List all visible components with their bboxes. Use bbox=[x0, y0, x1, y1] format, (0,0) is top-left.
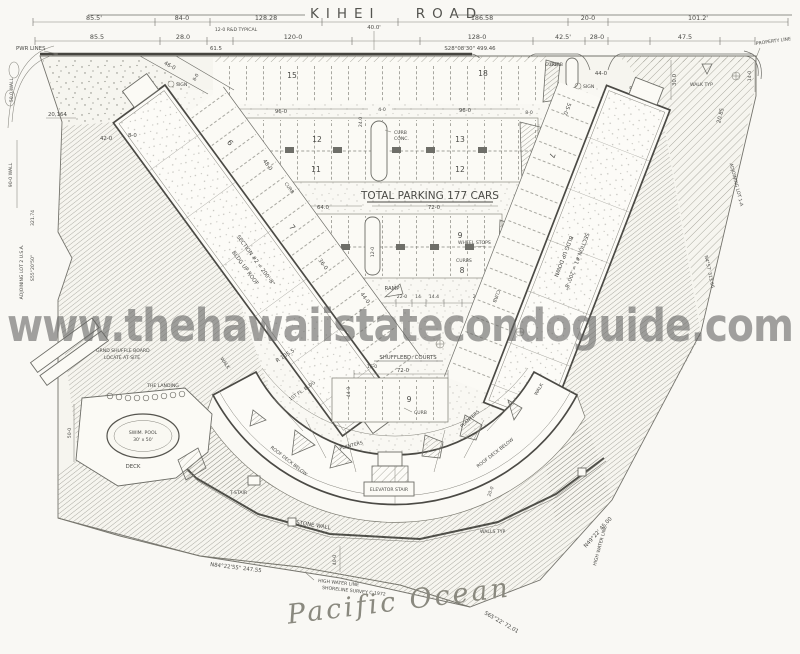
property-line-label: PROPERTY LINE bbox=[755, 36, 791, 47]
total-parking-note: TOTAL PARKING 177 CARS bbox=[360, 190, 499, 202]
pwr-lines-label: PWR LINES bbox=[16, 46, 46, 52]
pool-label-2: 30' x 50' bbox=[133, 437, 153, 443]
pool-label-1: SWIM. POOL bbox=[129, 430, 158, 436]
kihei-road: KIHEI ROAD 40.0' bbox=[88, 6, 792, 50]
dim-top2-6: 42.5' bbox=[555, 33, 571, 41]
road-name: KIHEI ROAD bbox=[310, 6, 483, 22]
curbs-label: CURBS bbox=[456, 258, 472, 264]
dim-row-b-left: 96-0 bbox=[275, 109, 288, 115]
dim-row-b-end: 8-0 bbox=[525, 110, 533, 116]
count-row-a-1: 15 bbox=[287, 71, 297, 80]
shore-far-bearing: S65°22' 72.01 bbox=[483, 611, 519, 635]
dim-top2-7: 28-0 bbox=[590, 33, 605, 41]
dim-pool: 50-0 bbox=[67, 428, 73, 439]
total-parking-text: TOTAL PARKING 177 CARS bbox=[360, 190, 499, 202]
dim-court-d: 44-0 bbox=[346, 387, 352, 398]
dim-top2-8: 47.5 bbox=[678, 33, 692, 41]
shuffle-note-2: LOCATE AT SITE bbox=[104, 355, 140, 361]
dim-wing-a-5: 8-0 bbox=[128, 133, 137, 139]
dim-top2-2: 28.0 bbox=[176, 33, 190, 41]
entry-right-width: 44-0 bbox=[595, 71, 608, 77]
dim-corner-right: 14-0 bbox=[747, 71, 753, 82]
count-court: 9 bbox=[407, 395, 412, 404]
ramp-label: RAMP bbox=[384, 286, 400, 292]
site-plan-sheet: KIHEI ROAD 40.0' 85.5' 84-0 128.28 186.5… bbox=[0, 0, 800, 654]
typical-note: 12-0 R&D TYPICAL bbox=[215, 27, 258, 33]
dim-top-6: 101.2' bbox=[688, 14, 708, 22]
sign-label-left: SIGN bbox=[176, 82, 187, 88]
dim-top-5: 20-0 bbox=[581, 14, 596, 22]
area-note: 20,164 bbox=[48, 112, 67, 118]
the-landing-label: THE LANDING bbox=[146, 383, 179, 389]
left-bearing-length: 321.74 bbox=[30, 210, 36, 226]
curb-label-island: CURB bbox=[394, 130, 407, 136]
dim-row-b-gap: 4-0 bbox=[378, 107, 386, 113]
elevator-stair-label: ELEVATOR STAIR bbox=[370, 487, 409, 493]
count-row-b-2: 11 bbox=[311, 165, 321, 174]
walls-typ-label: WALLS TYP bbox=[480, 529, 506, 535]
dim-row-c-left: 64.0 bbox=[317, 205, 330, 211]
dim-top2-1: 85.5 bbox=[90, 33, 104, 41]
adjoining-left-label: ADJOINING LOT 2 U.S.A. bbox=[19, 245, 25, 300]
dim-top2-5: 128-0 bbox=[468, 33, 487, 41]
watermark: www.thehawaiistatecondoguide.com bbox=[7, 299, 793, 352]
shuffleboard-label: SHUFFLEBD. COURTS bbox=[379, 355, 437, 361]
dim-wing-a-4: 42-0 bbox=[100, 136, 113, 142]
dim-top-1: 85.5' bbox=[86, 14, 102, 22]
dim-row-b-right: 96-0 bbox=[459, 108, 472, 114]
sign-label-right: SIGN bbox=[583, 84, 594, 90]
dimension-row-2: 85.5 28.0 61.5 120-0 128-0 42.5' 28-0 47… bbox=[35, 33, 755, 52]
walk-typ-label: WALK TYP bbox=[690, 82, 713, 88]
count-row-b-4: 12 bbox=[455, 165, 465, 174]
road-bearing: S28°08'30" 499.46 bbox=[444, 46, 496, 52]
dim-court-s: 16-0 bbox=[367, 364, 378, 370]
curb-label-right: CURB bbox=[545, 62, 558, 68]
dim-row-c-island: 12-0 bbox=[370, 247, 376, 258]
dim-top2-4: 120-0 bbox=[284, 33, 303, 41]
count-row-b-1: 12 bbox=[312, 135, 322, 144]
road-width: 40.0' bbox=[367, 25, 381, 31]
dim-top-3: 128.28 bbox=[255, 14, 277, 22]
wall-left-label: 90-0 WALL bbox=[8, 162, 14, 187]
count-row-c-3: 9 bbox=[458, 231, 463, 240]
wheel-stops-label: WHEEL STOPS bbox=[458, 240, 491, 246]
site-plan-drawing: KIHEI ROAD 40.0' 85.5' 84-0 128.28 186.5… bbox=[0, 0, 800, 654]
dim-court-w: 72-0 bbox=[397, 368, 410, 374]
count-row-c-4: 8 bbox=[460, 266, 465, 275]
dim-top-4: 186.58 bbox=[471, 14, 493, 22]
count-row-b-3: 13 bbox=[455, 135, 465, 144]
parking-row-a: 15 18 CURB bbox=[213, 56, 563, 104]
dim-row-c-right: 72-0 bbox=[428, 205, 441, 211]
dim-shore: 40-0 bbox=[332, 555, 338, 566]
dim-top-2: 84-0 bbox=[175, 14, 190, 22]
count-row-a-2: 18 bbox=[478, 69, 488, 78]
curb-label-court: CURB bbox=[414, 410, 427, 416]
conc-label-island: CONC. bbox=[394, 136, 409, 142]
dim-top2-3: 61.5 bbox=[210, 46, 222, 52]
deck-label: DECK bbox=[126, 464, 141, 470]
wall-top-label: 50.0 WALL bbox=[9, 77, 15, 102]
left-bearing: S55°20'50" bbox=[30, 255, 36, 281]
dim-row-b-aisle: 24.0 bbox=[358, 117, 364, 127]
t-stair-label: T-STAIR bbox=[229, 490, 248, 496]
road-right-dim: 30.0 bbox=[672, 73, 678, 86]
